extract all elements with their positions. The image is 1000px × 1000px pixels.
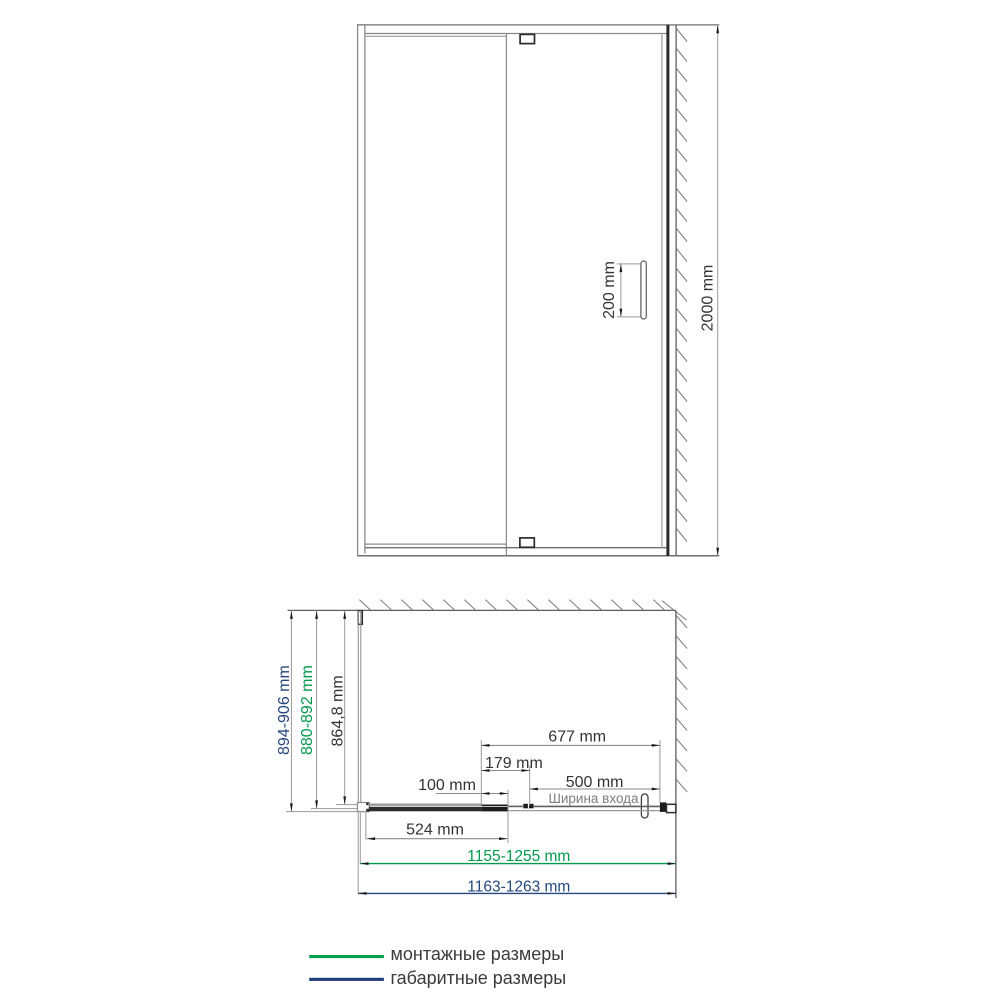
svg-text:2000 mm: 2000 mm [700,265,717,332]
svg-text:500 mm: 500 mm [566,774,624,791]
svg-text:1155-1255 mm: 1155-1255 mm [467,848,570,865]
svg-text:200 mm: 200 mm [601,261,618,319]
svg-text:880-892 mm: 880-892 mm [299,665,316,755]
svg-text:864,8 mm: 864,8 mm [330,675,347,746]
svg-text:179 mm: 179 mm [485,755,543,772]
svg-text:габаритные размеры: габаритные размеры [391,968,567,988]
svg-text:894-906 mm: 894-906 mm [276,665,293,755]
svg-text:677 mm: 677 mm [548,729,606,746]
svg-text:монтажные размеры: монтажные размеры [391,944,565,964]
svg-text:100 mm: 100 mm [418,777,476,794]
svg-text:1163-1263 mm: 1163-1263 mm [467,879,570,896]
svg-text:524 mm: 524 mm [406,821,464,838]
svg-text:Ширина входа: Ширина входа [549,791,640,806]
